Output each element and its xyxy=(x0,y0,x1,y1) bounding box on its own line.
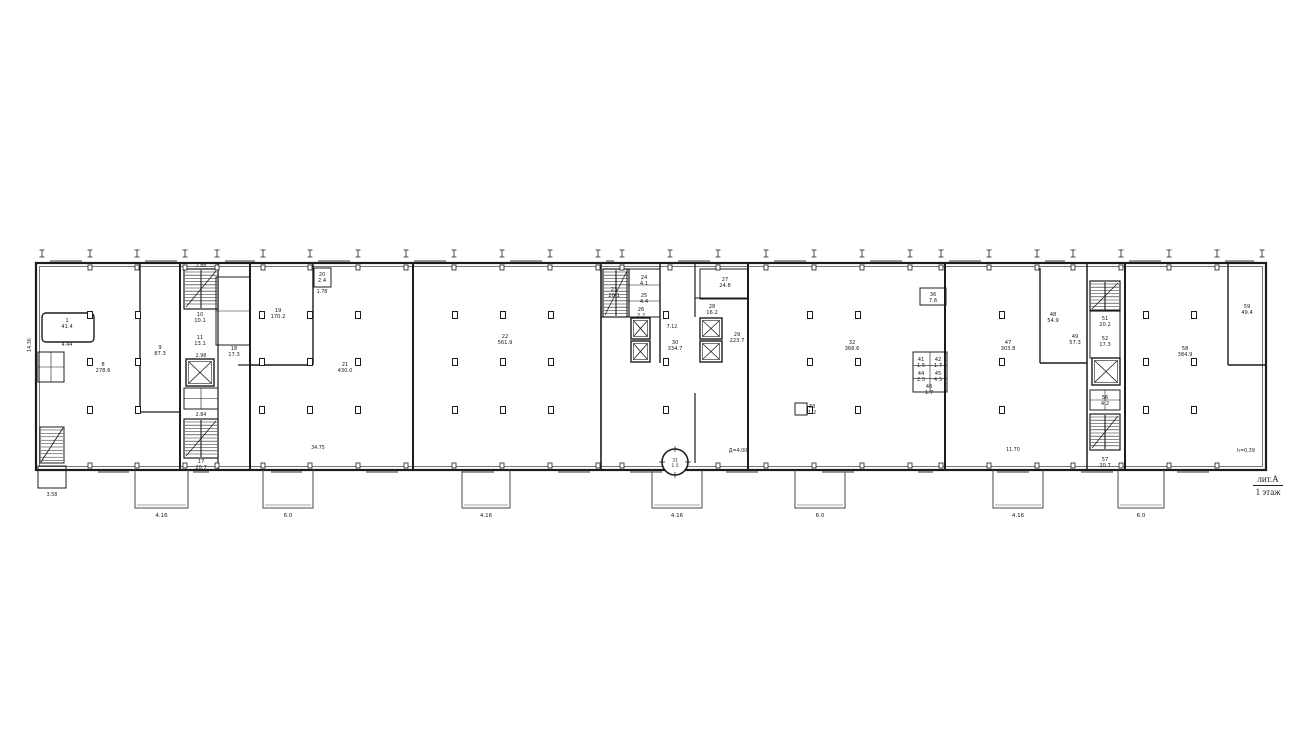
dimension-label: 4.44 xyxy=(62,342,73,348)
room-area: 1.5 xyxy=(917,363,925,369)
column xyxy=(501,359,506,366)
room-number: 31 xyxy=(672,458,678,464)
axis-tick xyxy=(308,250,313,257)
room-area: 430.0 xyxy=(338,368,353,374)
porch-dimension: 4.16 xyxy=(155,513,168,519)
axis-tick xyxy=(764,250,769,257)
wall-column-mark xyxy=(596,265,600,270)
column xyxy=(453,407,458,414)
wall-column-mark xyxy=(1119,463,1123,468)
porch-outline xyxy=(462,470,510,508)
wall-column-mark xyxy=(88,265,92,270)
wall-column-mark xyxy=(1167,463,1171,468)
axis-tick xyxy=(1119,250,1124,257)
wall-column-mark xyxy=(261,265,265,270)
dimension-label: 2.98 xyxy=(196,353,207,359)
wall-column-mark xyxy=(1167,265,1171,270)
room-area: 170.2 xyxy=(271,314,286,320)
column xyxy=(664,312,669,319)
wall-column-mark xyxy=(404,265,408,270)
column xyxy=(664,407,669,414)
column xyxy=(856,407,861,414)
wall-column-mark xyxy=(620,463,624,468)
wall-column-mark xyxy=(500,265,504,270)
room-area: 41.4 xyxy=(61,324,73,330)
wall-column-mark xyxy=(908,463,912,468)
floor-plan-page: 4.166.04.164.166.04.166.0311.5141.48278.… xyxy=(0,0,1307,735)
column xyxy=(453,312,458,319)
wall-column-mark xyxy=(596,463,600,468)
room-area: 4.1 xyxy=(640,281,648,287)
column xyxy=(136,359,141,366)
wall-column-mark xyxy=(500,463,504,468)
porch-outline xyxy=(1118,470,1164,508)
room-area: 17.3 xyxy=(228,352,240,358)
column xyxy=(501,407,506,414)
room-area: 13.1 xyxy=(194,341,206,347)
column xyxy=(356,407,361,414)
wall-column-mark xyxy=(764,265,768,270)
wall-column-mark xyxy=(452,265,456,270)
dimension-label: 3.58 xyxy=(47,492,58,498)
dimension-label: 2.84 xyxy=(196,412,207,418)
column xyxy=(1000,312,1005,319)
dimension-label: 7.12 xyxy=(667,324,678,330)
room-area: 87.3 xyxy=(154,351,166,357)
porch-dimension: 4.16 xyxy=(480,513,493,519)
small-room-box xyxy=(795,403,807,415)
room-area: 2.4 xyxy=(318,278,327,284)
room-area: 20.7 xyxy=(1099,463,1111,469)
title-block: лит.А 1 этаж xyxy=(1238,474,1298,498)
wall-column-mark xyxy=(1035,265,1039,270)
wall-column-mark xyxy=(548,265,552,270)
dimension-label: 34.75 xyxy=(311,445,325,451)
column xyxy=(260,359,265,366)
room-area: 1.2 xyxy=(808,410,816,416)
room-area: 16.2 xyxy=(706,310,718,316)
room-area: 384.9 xyxy=(1178,352,1193,358)
column xyxy=(1192,359,1197,366)
column xyxy=(808,312,813,319)
wall-column-mark xyxy=(135,265,139,270)
wall-column-mark xyxy=(308,463,312,468)
room-area: 334.7 xyxy=(668,346,683,352)
column xyxy=(1144,359,1149,366)
column xyxy=(1192,312,1197,319)
building-letter-label: лит.А xyxy=(1253,474,1282,486)
axis-tick xyxy=(548,250,553,257)
room-area: 24.8 xyxy=(719,283,731,289)
wall-column-mark xyxy=(1215,463,1219,468)
porch-outline xyxy=(263,470,313,508)
column xyxy=(453,359,458,366)
dimension-label: 14.36 xyxy=(27,338,33,352)
axis-tick xyxy=(908,250,913,257)
wall-column-mark xyxy=(215,265,219,270)
wall-column-mark xyxy=(261,463,265,468)
wall-column-mark xyxy=(987,463,991,468)
axis-tick xyxy=(452,250,457,257)
axis-tick xyxy=(668,250,673,257)
axis-tick xyxy=(939,250,944,257)
axis-tick xyxy=(1167,250,1172,257)
axis-tick xyxy=(860,250,865,257)
column xyxy=(664,359,669,366)
wall-column-mark xyxy=(939,265,943,270)
porch-dimension: 6.0 xyxy=(816,513,825,519)
wall-column-mark xyxy=(183,463,187,468)
wall-column-mark xyxy=(860,463,864,468)
wall-column-mark xyxy=(548,463,552,468)
axis-tick xyxy=(183,250,188,257)
wall-column-mark xyxy=(452,463,456,468)
room-area: 20.1 xyxy=(608,293,620,299)
wall-column-mark xyxy=(183,265,187,270)
wall-column-mark xyxy=(135,463,139,468)
dimension-label: h=0,39 xyxy=(1237,448,1255,454)
room-area: 2.5 xyxy=(917,377,925,383)
floor-plan-drawing: 4.166.04.164.166.04.166.0311.5141.48278.… xyxy=(0,0,1307,735)
wall-column-mark xyxy=(764,463,768,468)
wall-column-mark xyxy=(939,463,943,468)
axis-tick xyxy=(987,250,992,257)
column xyxy=(136,312,141,319)
wall-column-mark xyxy=(1035,463,1039,468)
room-area: 4.5 xyxy=(934,377,942,383)
wall-column-mark xyxy=(716,463,720,468)
room-area: 2.2 xyxy=(637,313,645,319)
axis-tick xyxy=(404,250,409,257)
room-area: 20.2 xyxy=(1099,322,1111,328)
axis-tick xyxy=(88,250,93,257)
room-area: 1.5 xyxy=(671,463,678,469)
axis-tick xyxy=(812,250,817,257)
room-area: 17.3 xyxy=(1099,342,1111,348)
axis-tick xyxy=(500,250,505,257)
wall-column-mark xyxy=(1071,463,1075,468)
column xyxy=(1144,407,1149,414)
room-area: 57.3 xyxy=(1069,340,1081,346)
column xyxy=(856,312,861,319)
column xyxy=(1000,407,1005,414)
wall-column-mark xyxy=(620,265,624,270)
room-area: 4.4 xyxy=(640,299,649,305)
wall-column-mark xyxy=(1215,265,1219,270)
axis-tick xyxy=(261,250,266,257)
column xyxy=(1144,312,1149,319)
dimension-label: 11.70 xyxy=(1006,447,1020,453)
column xyxy=(549,407,554,414)
column xyxy=(260,407,265,414)
column xyxy=(308,407,313,414)
porch-dimension: 4.16 xyxy=(671,513,684,519)
wall-column-mark xyxy=(88,463,92,468)
wall-column-mark xyxy=(908,265,912,270)
column xyxy=(308,359,313,366)
axis-tick xyxy=(1215,250,1220,257)
room-area: 278.6 xyxy=(96,368,111,374)
wall-column-mark xyxy=(812,463,816,468)
column xyxy=(88,359,93,366)
porch-outline xyxy=(652,470,702,508)
axis-tick xyxy=(620,250,625,257)
axis-tick xyxy=(356,250,361,257)
column xyxy=(88,312,93,319)
column xyxy=(1000,359,1005,366)
room-area: 49.4 xyxy=(1241,310,1253,316)
wall-column-mark xyxy=(1071,265,1075,270)
wall-column-mark xyxy=(987,265,991,270)
column xyxy=(356,359,361,366)
column xyxy=(260,312,265,319)
porch-outline xyxy=(993,470,1043,508)
porch-outline xyxy=(135,470,188,508)
wall-column-mark xyxy=(1119,265,1123,270)
wall-column-mark xyxy=(812,265,816,270)
column xyxy=(356,312,361,319)
porch-dimension: 6.0 xyxy=(1137,513,1146,519)
exterior-wall xyxy=(36,263,1266,470)
column xyxy=(136,407,141,414)
column xyxy=(549,359,554,366)
column xyxy=(308,312,313,319)
wall-column-mark xyxy=(404,463,408,468)
column xyxy=(549,312,554,319)
axis-tick xyxy=(1260,250,1265,257)
dimension-label: 2.88 xyxy=(196,263,207,269)
wall-column-mark xyxy=(356,463,360,468)
exterior-wall-inner-line xyxy=(40,267,1263,467)
axis-tick xyxy=(215,250,220,257)
axis-tick xyxy=(40,250,45,257)
column xyxy=(808,359,813,366)
floor-number-label: 1 этаж xyxy=(1238,487,1298,497)
axis-tick xyxy=(1071,250,1076,257)
room-area: 561.9 xyxy=(498,340,513,346)
column xyxy=(856,359,861,366)
room-area: 1.7 xyxy=(925,390,933,396)
wall-column-mark xyxy=(860,265,864,270)
room-area: 20.7 xyxy=(195,465,207,471)
column xyxy=(88,407,93,414)
wall-column-mark xyxy=(668,265,672,270)
wall-column-mark xyxy=(356,265,360,270)
wall-column-mark xyxy=(308,265,312,270)
dimension-label: Д=4,00 xyxy=(729,448,747,454)
room-area: 368.6 xyxy=(845,346,860,352)
porch-dimension: 6.0 xyxy=(284,513,293,519)
wall-column-mark xyxy=(716,265,720,270)
room-area: 4.2 xyxy=(1101,401,1109,407)
axis-tick xyxy=(716,250,721,257)
room-area: 1.7 xyxy=(934,363,942,369)
axis-tick xyxy=(596,250,601,257)
room-area: 10.1 xyxy=(194,318,206,324)
room-area: 223.7 xyxy=(730,338,745,344)
room-area: 54.9 xyxy=(1047,318,1059,324)
axis-tick xyxy=(135,250,140,257)
wall-column-mark xyxy=(215,463,219,468)
column xyxy=(501,312,506,319)
axis-tick xyxy=(1035,250,1040,257)
room-area: 7.6 xyxy=(929,298,937,304)
porch-dimension: 4.16 xyxy=(1012,513,1025,519)
column xyxy=(1192,407,1197,414)
dimension-label: 1.78 xyxy=(317,289,328,295)
porch-outline xyxy=(795,470,845,508)
room-area: 303.8 xyxy=(1001,346,1016,352)
